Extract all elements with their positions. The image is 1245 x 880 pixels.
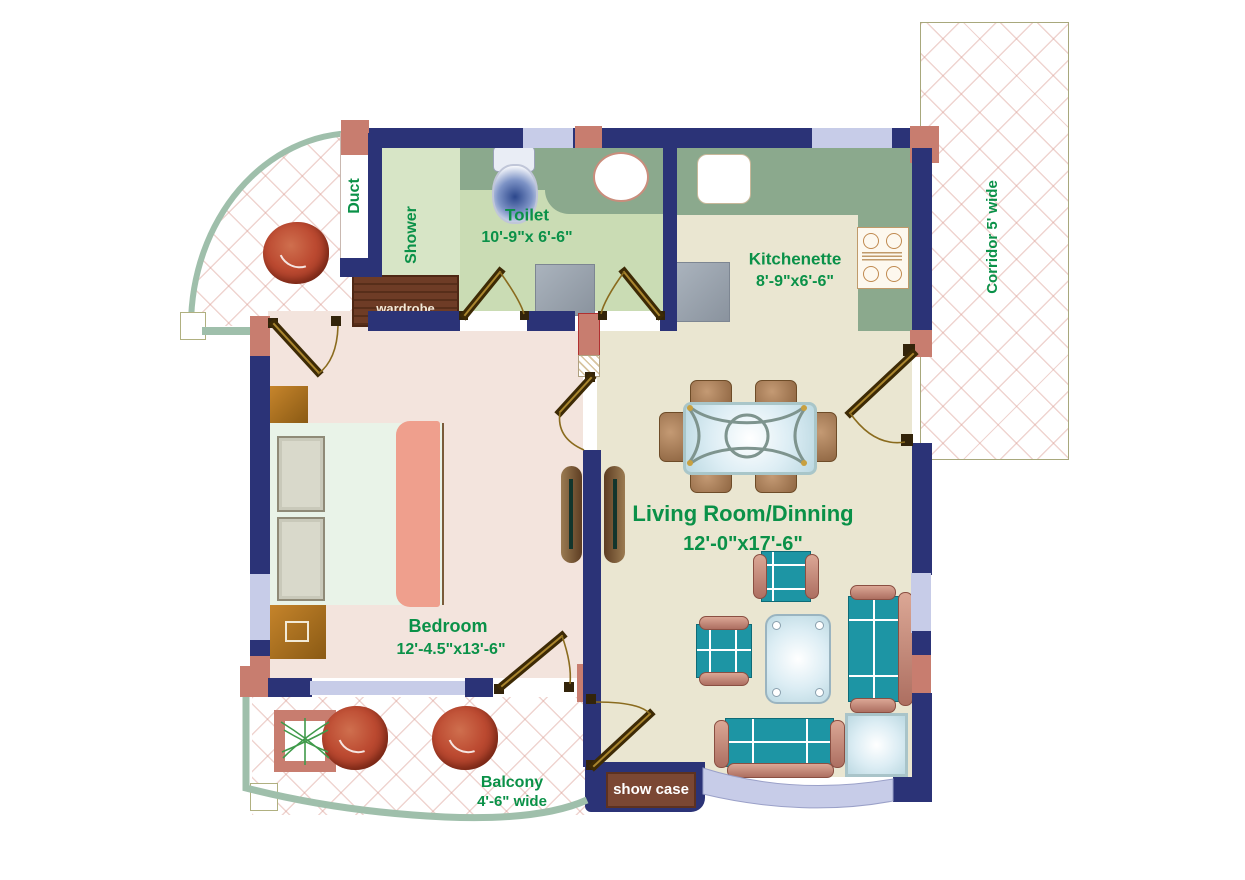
wall-toilet-bottom-a xyxy=(368,311,460,331)
wall-toilet-bottom-c xyxy=(660,311,677,331)
kitchen-sink xyxy=(697,154,751,204)
pillar-entry xyxy=(910,330,932,357)
wall-bottom-corner xyxy=(893,777,932,802)
bed xyxy=(270,423,444,605)
stove-grill xyxy=(862,252,902,261)
shower-label: Shower xyxy=(403,206,421,264)
window-top-1 xyxy=(523,128,573,148)
wall-duct-bottom xyxy=(340,258,382,277)
balcony-red-chair xyxy=(322,706,388,770)
corridor-label: Corridor 5' wide xyxy=(985,180,1002,294)
floor-plan-canvas: Corridor 5' wide wardrobe xyxy=(0,0,1245,880)
toilet-mat xyxy=(535,264,595,316)
coffee-table xyxy=(765,614,831,704)
balcony-label: Balcony xyxy=(481,774,543,792)
sofa-right xyxy=(846,585,912,712)
wall-right-low1 xyxy=(912,631,931,657)
tv-screen xyxy=(569,479,573,549)
burner-icon xyxy=(863,233,879,249)
phone-icon xyxy=(285,621,309,642)
table-leg xyxy=(815,621,824,630)
duct-label: Duct xyxy=(346,178,364,214)
pillar-hall xyxy=(578,313,600,357)
pillow xyxy=(277,436,325,512)
armchair-top xyxy=(753,551,817,600)
living-label: Living Room/Dinning xyxy=(632,502,853,526)
pillar-top-left xyxy=(341,120,369,155)
toilet-label: Toilet xyxy=(505,207,549,226)
wall-divider xyxy=(583,450,601,767)
wall-bedroom-bottom-a xyxy=(268,678,312,697)
nightstand-top xyxy=(268,386,308,423)
shower-floor xyxy=(382,148,460,280)
side-table xyxy=(845,713,908,777)
wall-bedroom-bottom-b xyxy=(465,678,493,697)
terrace-post xyxy=(180,312,206,340)
balcony-post xyxy=(250,783,278,811)
window-left xyxy=(250,574,270,640)
tv-unit-bedroom xyxy=(561,466,582,563)
shaft-hatch xyxy=(578,355,600,377)
dining-table xyxy=(683,402,817,475)
sofa-bottom xyxy=(714,716,845,776)
table-leg xyxy=(772,688,781,697)
wall-toilet-kitchen xyxy=(663,148,677,331)
wall-right-upper xyxy=(912,148,932,332)
pillar-left-top xyxy=(250,316,270,356)
window-right xyxy=(911,573,931,633)
showcase: show case xyxy=(606,772,696,808)
pillar-corner-bl xyxy=(240,666,270,697)
wall-right-mid xyxy=(912,443,932,575)
kitchenette-label: Kitchenette xyxy=(749,251,842,270)
terrace-area xyxy=(188,130,356,326)
living-dims: 12'-0"x17'-6" xyxy=(683,533,803,555)
kitchenette-dims: 8'-9"x6'-6" xyxy=(756,273,834,291)
bed-blanket xyxy=(396,421,440,607)
bedroom-label: Bedroom xyxy=(408,617,487,637)
terrace-red-chair xyxy=(263,222,329,284)
pillar-top-mid xyxy=(575,126,602,148)
table-leg xyxy=(772,621,781,630)
wall-duct xyxy=(368,133,382,260)
bedroom-dims: 12'-4.5"x13'-6" xyxy=(396,641,505,659)
window-top-2 xyxy=(812,128,892,148)
armchair-left xyxy=(696,616,750,684)
showcase-label: show case xyxy=(613,782,689,799)
burner-icon xyxy=(886,266,902,282)
window-bedroom-bottom xyxy=(310,681,465,695)
table-leg xyxy=(815,688,824,697)
tv-screen xyxy=(613,479,617,549)
washbasin xyxy=(593,152,649,202)
burner-icon xyxy=(886,233,902,249)
stove xyxy=(857,227,909,289)
wall-toilet-bottom-b xyxy=(527,311,575,331)
tv-unit-living xyxy=(604,466,625,563)
pillar-right-low xyxy=(912,655,931,695)
nightstand-bottom xyxy=(268,601,326,659)
balcony-dims: 4'-6" wide xyxy=(477,794,547,811)
pillow xyxy=(277,517,325,601)
toilet-dims: 10'-9"x 6'-6" xyxy=(481,229,572,247)
balcony-red-chair xyxy=(432,706,498,770)
burner-icon xyxy=(863,266,879,282)
fridge xyxy=(676,262,730,322)
